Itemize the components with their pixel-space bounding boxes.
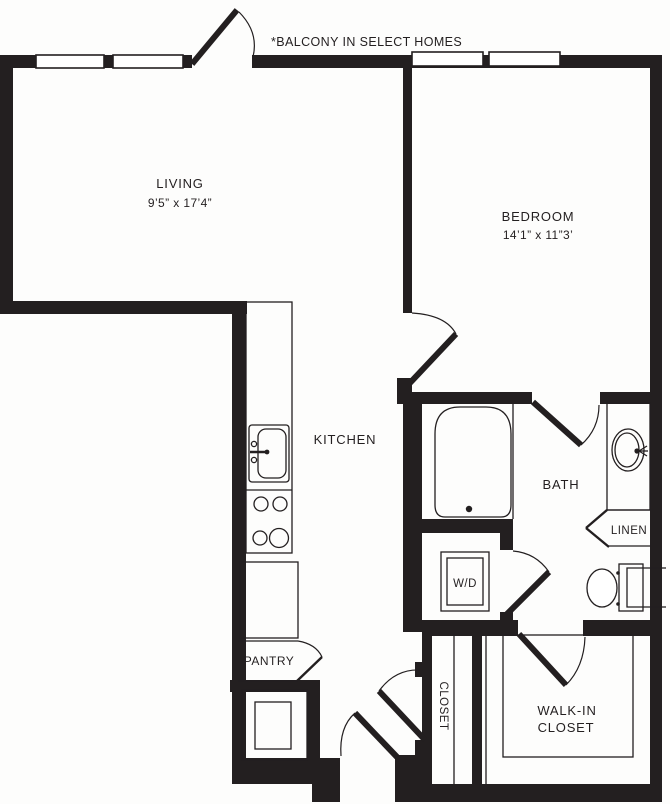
counter-outline bbox=[246, 302, 292, 553]
burner-large bbox=[270, 529, 289, 548]
door-balcony bbox=[192, 10, 254, 64]
door-entry-closet bbox=[379, 670, 425, 740]
window-bedroom-2 bbox=[489, 52, 560, 66]
wall-closet-walkin-divider bbox=[472, 632, 482, 784]
wd-label: W/D bbox=[453, 578, 477, 590]
door-swing-arc bbox=[239, 12, 254, 57]
bedroom-label: BEDROOM bbox=[502, 209, 575, 224]
stove bbox=[253, 497, 289, 548]
entry-cabinet bbox=[242, 690, 307, 760]
closet-label: CLOSET bbox=[437, 681, 449, 730]
wall-wd-right-upper bbox=[500, 519, 513, 550]
balcony-note: *BALCONY IN SELECT HOMES bbox=[271, 35, 462, 49]
pantry-door-leaf bbox=[297, 657, 322, 681]
toilet-tank bbox=[619, 564, 643, 611]
window-living-2 bbox=[113, 55, 183, 68]
sink-outline bbox=[249, 425, 289, 482]
toilet-hinge bbox=[616, 602, 620, 606]
door-swing-arc bbox=[566, 637, 585, 685]
faucet-handle bbox=[639, 446, 647, 451]
living-dimensions: 9’5” x 17’4” bbox=[148, 196, 212, 210]
wall-wd-bottom bbox=[422, 620, 518, 636]
window-bedroom-1 bbox=[412, 52, 483, 66]
door-leaf bbox=[533, 402, 581, 445]
door-swing-arc bbox=[412, 313, 456, 334]
door-leaf bbox=[192, 10, 237, 64]
toilet-hinge bbox=[616, 571, 620, 575]
bath-label: BATH bbox=[543, 477, 580, 492]
wall-kitchen-bath-divider bbox=[403, 392, 422, 632]
wall-exterior-right bbox=[650, 55, 662, 802]
walkin-closet-label-line2: CLOSET bbox=[538, 720, 595, 735]
linen-door-leaf-upper bbox=[586, 510, 607, 528]
walkin-shelf-liner bbox=[503, 635, 633, 757]
wall-bath-wd-divider bbox=[422, 519, 513, 533]
door-leaf bbox=[507, 572, 549, 614]
burner bbox=[254, 497, 268, 511]
refrigerator bbox=[240, 562, 298, 638]
bedroom-dimensions: 14’1” x 11”3’ bbox=[503, 228, 573, 242]
door-leaf bbox=[355, 713, 397, 757]
vanity-sink bbox=[607, 403, 650, 510]
wall-exterior-bottom-left-step bbox=[312, 784, 340, 802]
toilet-bowl bbox=[587, 569, 617, 607]
door-washer-dryer bbox=[507, 551, 549, 614]
cabinet-inner bbox=[255, 702, 291, 749]
tub-drain bbox=[466, 506, 472, 512]
wall-exterior-left bbox=[0, 55, 13, 314]
vanity-faucet bbox=[634, 448, 639, 453]
linen-label: LINEN bbox=[611, 525, 647, 537]
tub-outline bbox=[435, 407, 511, 517]
wall-exterior-bottom-right bbox=[422, 784, 662, 802]
sink-knob bbox=[251, 457, 256, 462]
sink-basin bbox=[258, 429, 286, 478]
floor-plan-drawing: *BALCONY IN SELECT HOMES LIVING 9’5” x 1… bbox=[0, 0, 670, 804]
kitchen-label: KITCHEN bbox=[314, 432, 377, 447]
door-bedroom bbox=[408, 313, 456, 385]
bathtub bbox=[435, 404, 513, 519]
door-bath bbox=[533, 402, 599, 445]
wall-bedroom-bottom-right bbox=[600, 392, 650, 404]
door-entry bbox=[341, 713, 397, 757]
door-swing-arc bbox=[379, 670, 420, 691]
kitchen-sink bbox=[249, 425, 289, 482]
floor-plan: *BALCONY IN SELECT HOMES LIVING 9’5” x 1… bbox=[0, 0, 670, 804]
door-leaf bbox=[379, 691, 425, 740]
burner bbox=[273, 497, 287, 511]
living-label: LIVING bbox=[156, 176, 203, 191]
door-swing-arc bbox=[581, 405, 599, 445]
window-living-1 bbox=[36, 55, 104, 68]
wall-entry-door-jamb bbox=[395, 755, 422, 802]
wall-entry-side bbox=[307, 680, 320, 760]
pantry-label: PANTRY bbox=[244, 654, 295, 668]
kitchen-counter bbox=[246, 302, 292, 553]
linen-door-leaf-lower bbox=[586, 528, 609, 547]
door-walk-in-closet bbox=[519, 634, 585, 685]
wall-bedroom-left bbox=[403, 57, 412, 313]
pantry-door-swing bbox=[298, 641, 322, 657]
wall-exterior-bottom-left bbox=[232, 758, 340, 784]
burner bbox=[253, 531, 267, 545]
door-leaf bbox=[519, 634, 566, 685]
sink-knob bbox=[251, 441, 256, 446]
sink-faucet-head bbox=[265, 450, 270, 455]
walkin-closet-label-line1: WALK-IN bbox=[537, 703, 596, 718]
wall-walkin-top bbox=[583, 620, 662, 636]
wall-living-bottom bbox=[0, 301, 247, 314]
door-swing-arc bbox=[513, 551, 549, 572]
door-swing-arc bbox=[341, 713, 355, 756]
door-leaf bbox=[408, 334, 456, 385]
